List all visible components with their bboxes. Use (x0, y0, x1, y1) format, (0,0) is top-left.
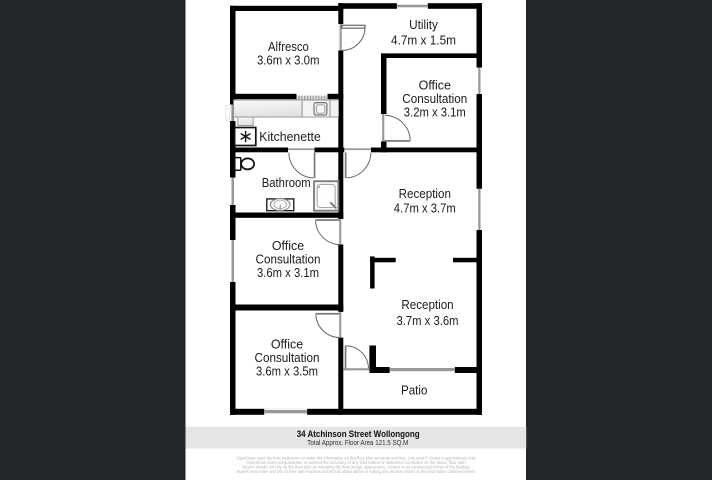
svg-text:Patio: Patio (401, 383, 428, 398)
svg-text:3.6m x 3.0m: 3.6m x 3.0m (257, 53, 320, 68)
svg-text:Kitchenette: Kitchenette (259, 129, 321, 144)
svg-text:4.7m x 1.5m: 4.7m x 1.5m (391, 33, 456, 48)
svg-text:3.6m x 3.1m: 3.6m x 3.1m (257, 265, 319, 280)
svg-text:3.7m x 3.6m: 3.7m x 3.6m (397, 313, 459, 328)
svg-text:4.7m x 3.7m: 4.7m x 3.7m (394, 200, 456, 215)
svg-text:Utility: Utility (409, 17, 438, 32)
svg-text:Bathroom: Bathroom (262, 175, 311, 190)
svg-text:3.6m x 3.5m: 3.6m x 3.5m (256, 363, 318, 378)
svg-text:3.2m x 3.1m: 3.2m x 3.1m (404, 105, 466, 120)
svg-text:34 Atchinson Street Wollongong: 34 Atchinson Street Wollongong (297, 429, 420, 439)
svg-text:Total Approx. Floor Area 121.5: Total Approx. Floor Area 121.5 SQ.M (307, 440, 408, 447)
svg-text:Buyers must make and rely on t: Buyers must make and rely on their own e… (237, 469, 475, 474)
svg-text:Reception: Reception (399, 186, 451, 201)
svg-text:Reception: Reception (401, 297, 453, 312)
